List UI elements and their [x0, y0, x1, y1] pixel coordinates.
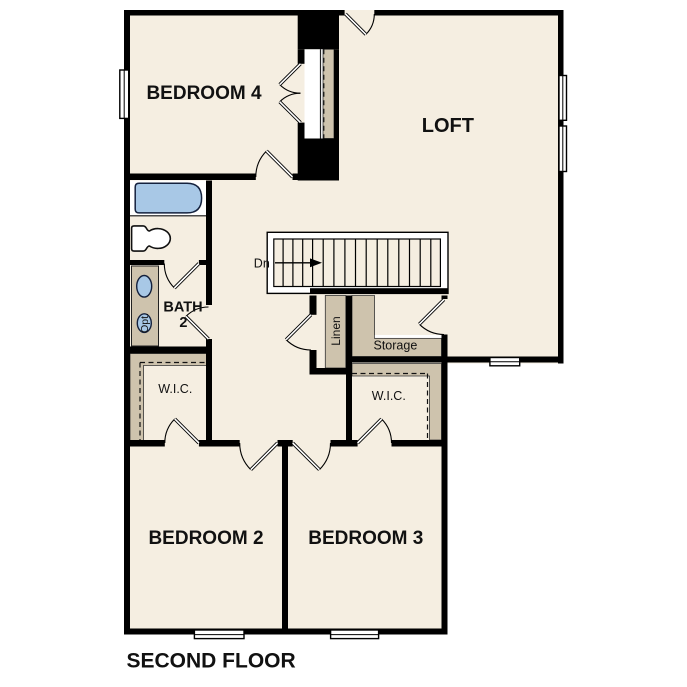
svg-text:W.I.C.: W.I.C.	[158, 382, 192, 396]
svg-text:Storage: Storage	[374, 339, 418, 353]
svg-text:Opt.: Opt.	[139, 313, 151, 333]
svg-text:Linen: Linen	[329, 316, 343, 345]
svg-text:BEDROOM 4: BEDROOM 4	[146, 83, 262, 104]
svg-text:BATH: BATH	[163, 300, 202, 316]
svg-text:LOFT: LOFT	[422, 115, 474, 137]
svg-text:BEDROOM 2: BEDROOM 2	[148, 528, 263, 549]
svg-text:BEDROOM 3: BEDROOM 3	[308, 528, 423, 549]
svg-text:W.I.C.: W.I.C.	[372, 389, 406, 403]
svg-text:Dn: Dn	[254, 257, 270, 271]
svg-text:SECOND FLOOR: SECOND FLOOR	[127, 650, 296, 673]
svg-text:2: 2	[179, 315, 187, 331]
